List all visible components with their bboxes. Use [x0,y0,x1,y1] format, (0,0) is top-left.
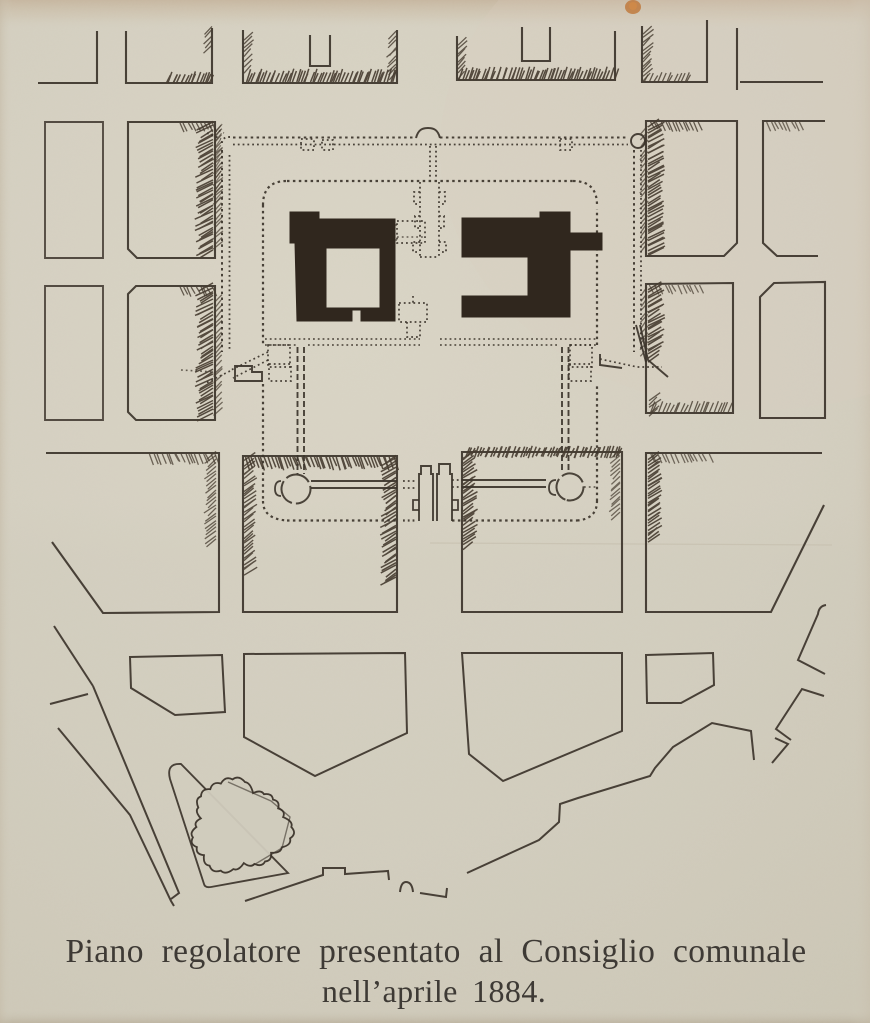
svg-text:nell’aprile 1884.: nell’aprile 1884. [322,973,546,1009]
svg-text:Piano regolatore presentato al: Piano regolatore presentato al Consiglio… [66,933,807,970]
